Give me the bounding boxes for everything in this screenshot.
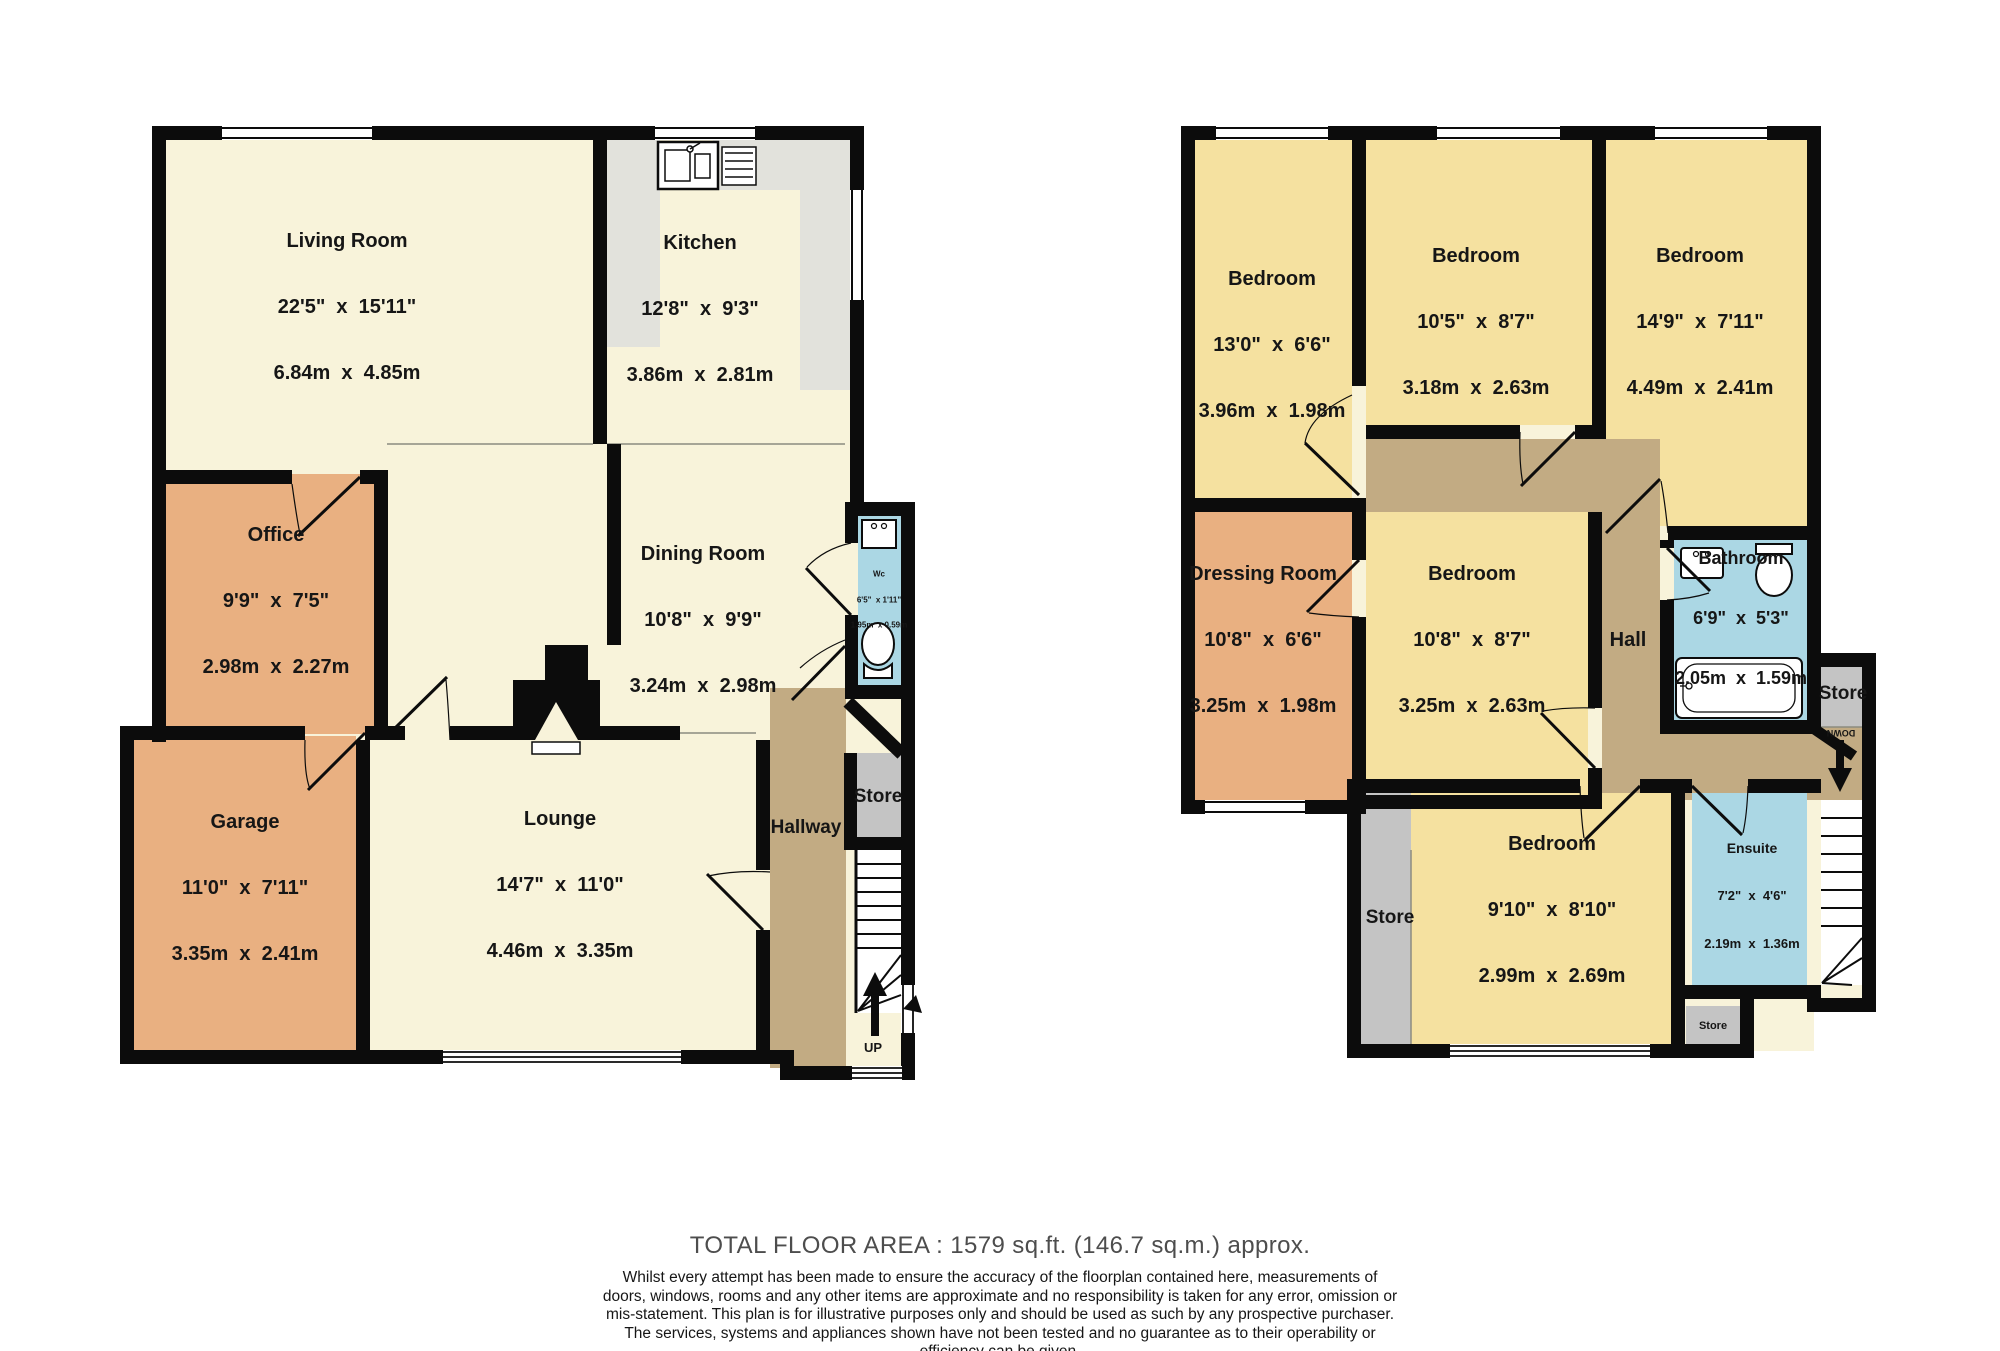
total-floor-area: TOTAL FLOOR AREA : 1579 sq.ft. (146.7 sq… bbox=[0, 1232, 2000, 1260]
bedroom1-label: Bedroom 13'0" x 6'6" 3.96m x 1.98m bbox=[1199, 224, 1346, 466]
garage-label: Garage 11'0" x 7'11" 3.35m x 2.41m bbox=[172, 767, 319, 1009]
disclaimer-text: Whilst every attempt has been made to en… bbox=[600, 1269, 1400, 1351]
store-small-label: Store bbox=[1699, 971, 1727, 1081]
kitchen-label: Kitchen 12'8" x 9'3" 3.86m x 2.81m bbox=[627, 188, 774, 430]
up-label: UP bbox=[864, 993, 882, 1103]
ensuite-label: Ensuite 7'2" x 4'6" 2.19m x 1.36m bbox=[1704, 808, 1799, 984]
dressing-room-label: Dressing Room 10'8" x 6'6" 3.25m x 1.98m bbox=[1189, 519, 1337, 761]
wc-label: Wc 6'5" x 1'11" 1.95m x 0.59m bbox=[851, 553, 907, 647]
store-left-label: Store bbox=[1366, 863, 1415, 973]
store-gf-label: Store bbox=[854, 742, 903, 852]
hall-label: Hall bbox=[1610, 585, 1647, 695]
office-label: Office 9'9" x 7'5" 2.98m x 2.27m bbox=[203, 480, 350, 722]
living-room-label: Living Room 22'5" x 15'11" 6.84m x 4.85m bbox=[274, 186, 421, 428]
bedroom2-label: Bedroom 10'5" x 8'7" 3.18m x 2.63m bbox=[1403, 201, 1550, 443]
bathroom-label: Bathroom 6'9" x 5'3" 2.05m x 1.59m bbox=[1675, 508, 1807, 728]
down-label: DOWN bbox=[1827, 678, 1856, 788]
hallway-label: Hallway bbox=[771, 773, 842, 883]
wc-sink-icon bbox=[862, 520, 896, 548]
floorplan-canvas: Living Room 22'5" x 15'11" 6.84m x 4.85m… bbox=[0, 0, 2000, 1351]
footer: TOTAL FLOOR AREA : 1579 sq.ft. (146.7 sq… bbox=[0, 1232, 2000, 1351]
lounge-label: Lounge 14'7" x 11'0" 4.46m x 3.35m bbox=[487, 764, 634, 1006]
bedroom3-label: Bedroom 14'9" x 7'11" 4.49m x 2.41m bbox=[1627, 201, 1774, 443]
bedroom5-label: Bedroom 9'10" x 8'10" 2.99m x 2.69m bbox=[1479, 789, 1626, 1031]
bedroom4-label: Bedroom 10'8" x 8'7" 3.25m x 2.63m bbox=[1399, 519, 1546, 761]
dining-room-label: Dining Room 10'8" x 9'9" 3.24m x 2.98m bbox=[630, 499, 777, 741]
kitchen-sink-icon bbox=[658, 142, 756, 189]
